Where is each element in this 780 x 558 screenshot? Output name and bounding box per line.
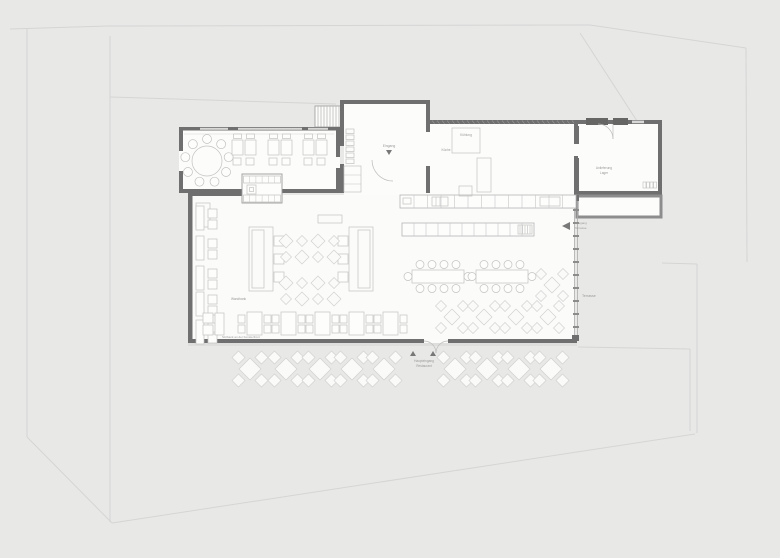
chair-round xyxy=(516,261,524,269)
wall xyxy=(576,126,579,144)
table xyxy=(281,312,296,335)
wall xyxy=(188,195,193,343)
chair xyxy=(366,325,373,333)
chair-round xyxy=(440,285,448,293)
wall xyxy=(576,158,579,191)
chair xyxy=(318,134,326,139)
chair-round xyxy=(183,168,192,177)
side-table xyxy=(203,325,213,335)
facade-post xyxy=(572,335,579,341)
table xyxy=(245,140,256,155)
mullion xyxy=(573,261,579,263)
label-main_entrance_line1: Haupteingang xyxy=(414,359,434,363)
chair xyxy=(400,325,407,333)
room-stair xyxy=(315,106,342,127)
mullion xyxy=(573,326,579,328)
window xyxy=(200,128,228,130)
terrace-chair xyxy=(302,351,315,364)
chair xyxy=(340,315,347,323)
wall-bench xyxy=(196,292,204,316)
chair-round xyxy=(222,168,231,177)
chair xyxy=(400,315,407,323)
wall xyxy=(426,166,430,193)
banquette-table xyxy=(338,272,348,282)
chair-round xyxy=(504,285,512,293)
side-table xyxy=(208,280,217,289)
chair xyxy=(233,158,241,165)
entrance-triangle-marker xyxy=(430,351,436,356)
terrace-chair xyxy=(255,374,268,387)
chair-round xyxy=(492,285,500,293)
mullion xyxy=(573,209,579,211)
mullion xyxy=(573,287,579,289)
label-bench_note: Wandbank xyxy=(231,297,247,301)
buffet-island xyxy=(402,223,534,236)
site-line xyxy=(108,25,590,26)
wall xyxy=(188,193,242,196)
building-shadow-strip xyxy=(188,343,577,346)
chair xyxy=(332,315,339,323)
bench xyxy=(215,313,224,335)
terrace-chair xyxy=(469,374,482,387)
site-line xyxy=(27,437,112,523)
label-exit_line2: Terrasse xyxy=(575,226,587,230)
terrace-chair xyxy=(268,351,281,364)
site-line xyxy=(112,434,695,523)
site-line xyxy=(590,25,746,48)
side-table xyxy=(203,313,213,323)
wall xyxy=(658,120,662,197)
chair xyxy=(298,325,305,333)
side-table xyxy=(208,220,217,229)
terrace-table xyxy=(540,358,562,380)
wall xyxy=(578,191,662,195)
chair xyxy=(305,134,313,139)
table xyxy=(315,312,330,335)
wall-bench xyxy=(196,206,204,230)
site-line xyxy=(578,347,690,349)
chair xyxy=(270,134,278,139)
terrace-chair xyxy=(268,374,281,387)
table xyxy=(232,140,243,155)
site-line xyxy=(746,48,747,262)
long-table xyxy=(476,270,528,283)
chair-round xyxy=(440,261,448,269)
label-entry_marker: Eingang xyxy=(383,144,396,148)
terrace-table xyxy=(373,358,395,380)
chair-round xyxy=(428,285,436,293)
terrace-chair xyxy=(389,374,402,387)
chair xyxy=(366,315,373,323)
terrace-chair xyxy=(501,374,514,387)
terrace-chair xyxy=(366,374,379,387)
floor-plan-canvas: EingangKühlungKücheAnlieferungLagerAusga… xyxy=(0,0,780,558)
mullion xyxy=(573,248,579,250)
chair-round xyxy=(217,140,226,149)
table xyxy=(281,140,292,155)
room-kitchen xyxy=(428,120,578,196)
chair-round xyxy=(428,261,436,269)
chair-round xyxy=(492,261,500,269)
chair-round xyxy=(528,273,536,281)
chair xyxy=(340,325,347,333)
table xyxy=(383,312,398,335)
wall xyxy=(448,339,577,343)
chair xyxy=(246,158,254,165)
entrance-triangle-marker xyxy=(410,351,416,356)
label-terrace: Terrasse xyxy=(582,294,596,298)
label-delivery_line2: Lager xyxy=(600,171,609,175)
chair-round xyxy=(452,261,460,269)
terrace-chair xyxy=(556,351,569,364)
terrace-table xyxy=(444,358,466,380)
chair xyxy=(304,158,312,165)
chair-round xyxy=(404,273,412,281)
site-line xyxy=(662,263,697,264)
wall-pier xyxy=(586,118,608,125)
terrace-table xyxy=(341,358,363,380)
terrace-chair xyxy=(437,351,450,364)
chair-round xyxy=(203,135,212,144)
chair xyxy=(238,325,245,333)
chair-round xyxy=(416,261,424,269)
wall xyxy=(282,189,340,193)
chair xyxy=(306,315,313,323)
side-table xyxy=(208,295,217,304)
terrace-chair xyxy=(389,351,402,364)
terrace-chair xyxy=(255,351,268,364)
chair xyxy=(282,158,290,165)
terrace-chair xyxy=(366,351,379,364)
chair xyxy=(298,315,305,323)
chair-round xyxy=(416,285,424,293)
window xyxy=(308,128,328,130)
chair xyxy=(332,325,339,333)
floor-plan: EingangKühlungKücheAnlieferungLagerAusga… xyxy=(0,0,780,558)
window xyxy=(632,121,644,124)
label-delivery_line1: Anlieferung xyxy=(596,166,612,170)
chair xyxy=(247,134,255,139)
label-main_entrance_line2: Restaurant xyxy=(416,364,432,368)
side-table xyxy=(208,269,217,278)
terrace-chair xyxy=(334,374,347,387)
loading-dock-floor xyxy=(578,197,660,216)
table xyxy=(247,312,262,335)
label-cold_room: Kühlung xyxy=(460,133,472,137)
label-exit_line1: Ausgang xyxy=(575,221,587,225)
terrace-chair xyxy=(533,351,546,364)
terrace-table xyxy=(508,358,530,380)
side-table xyxy=(208,239,217,248)
side-table xyxy=(208,209,217,218)
wall xyxy=(340,164,344,193)
terrace-table xyxy=(275,358,297,380)
chair xyxy=(374,315,381,323)
chair-round xyxy=(210,177,219,186)
wall xyxy=(340,100,430,104)
chair-round xyxy=(516,285,524,293)
chair-round xyxy=(468,273,476,281)
mullion xyxy=(573,274,579,276)
wall xyxy=(340,104,344,146)
wall-bench xyxy=(196,266,204,290)
chair xyxy=(306,325,313,333)
chair xyxy=(269,158,277,165)
chair-round xyxy=(195,177,204,186)
label-window_bench_note: Sitzbank an der Fensterfront xyxy=(222,335,260,339)
chair xyxy=(234,134,242,139)
chair-round xyxy=(181,153,190,162)
site-line xyxy=(10,26,108,29)
terrace-table xyxy=(239,358,261,380)
chair xyxy=(264,315,271,323)
chair xyxy=(264,325,271,333)
wall xyxy=(179,127,183,151)
terrace-chair xyxy=(501,351,514,364)
table xyxy=(268,140,279,155)
terrace-table xyxy=(309,358,331,380)
terrace-seating xyxy=(232,351,569,387)
wall xyxy=(336,127,340,157)
chair-round xyxy=(480,285,488,293)
mullion xyxy=(573,235,579,237)
chair xyxy=(272,315,279,323)
side-table xyxy=(208,334,217,343)
mullion xyxy=(573,313,579,315)
terrace-chair xyxy=(232,351,245,364)
table xyxy=(303,140,314,155)
terrace-chair xyxy=(232,374,245,387)
side-table xyxy=(208,250,217,259)
chair-round xyxy=(504,261,512,269)
long-table xyxy=(412,270,464,283)
wall-pier xyxy=(613,118,628,125)
chair xyxy=(238,315,245,323)
chair xyxy=(374,325,381,333)
site-line xyxy=(110,97,336,104)
label-kitchen: Küche xyxy=(441,148,450,152)
terrace-chair xyxy=(334,351,347,364)
wall-bench xyxy=(196,236,204,260)
wall xyxy=(188,339,424,343)
chair-round xyxy=(452,285,460,293)
wall xyxy=(336,168,340,193)
chair xyxy=(272,325,279,333)
mullion xyxy=(573,300,579,302)
wall xyxy=(426,104,430,132)
site-line xyxy=(580,33,637,121)
chair-round xyxy=(188,140,197,149)
window xyxy=(238,128,302,130)
terrace-chair xyxy=(302,374,315,387)
terrace-chair xyxy=(437,374,450,387)
terrace-table xyxy=(476,358,498,380)
terrace-chair xyxy=(533,374,546,387)
chair-round xyxy=(480,261,488,269)
chair xyxy=(317,158,325,165)
table xyxy=(349,312,364,335)
table xyxy=(316,140,327,155)
chair xyxy=(283,134,291,139)
wall xyxy=(179,189,242,193)
terrace-chair xyxy=(469,351,482,364)
terrace-chair xyxy=(556,374,569,387)
